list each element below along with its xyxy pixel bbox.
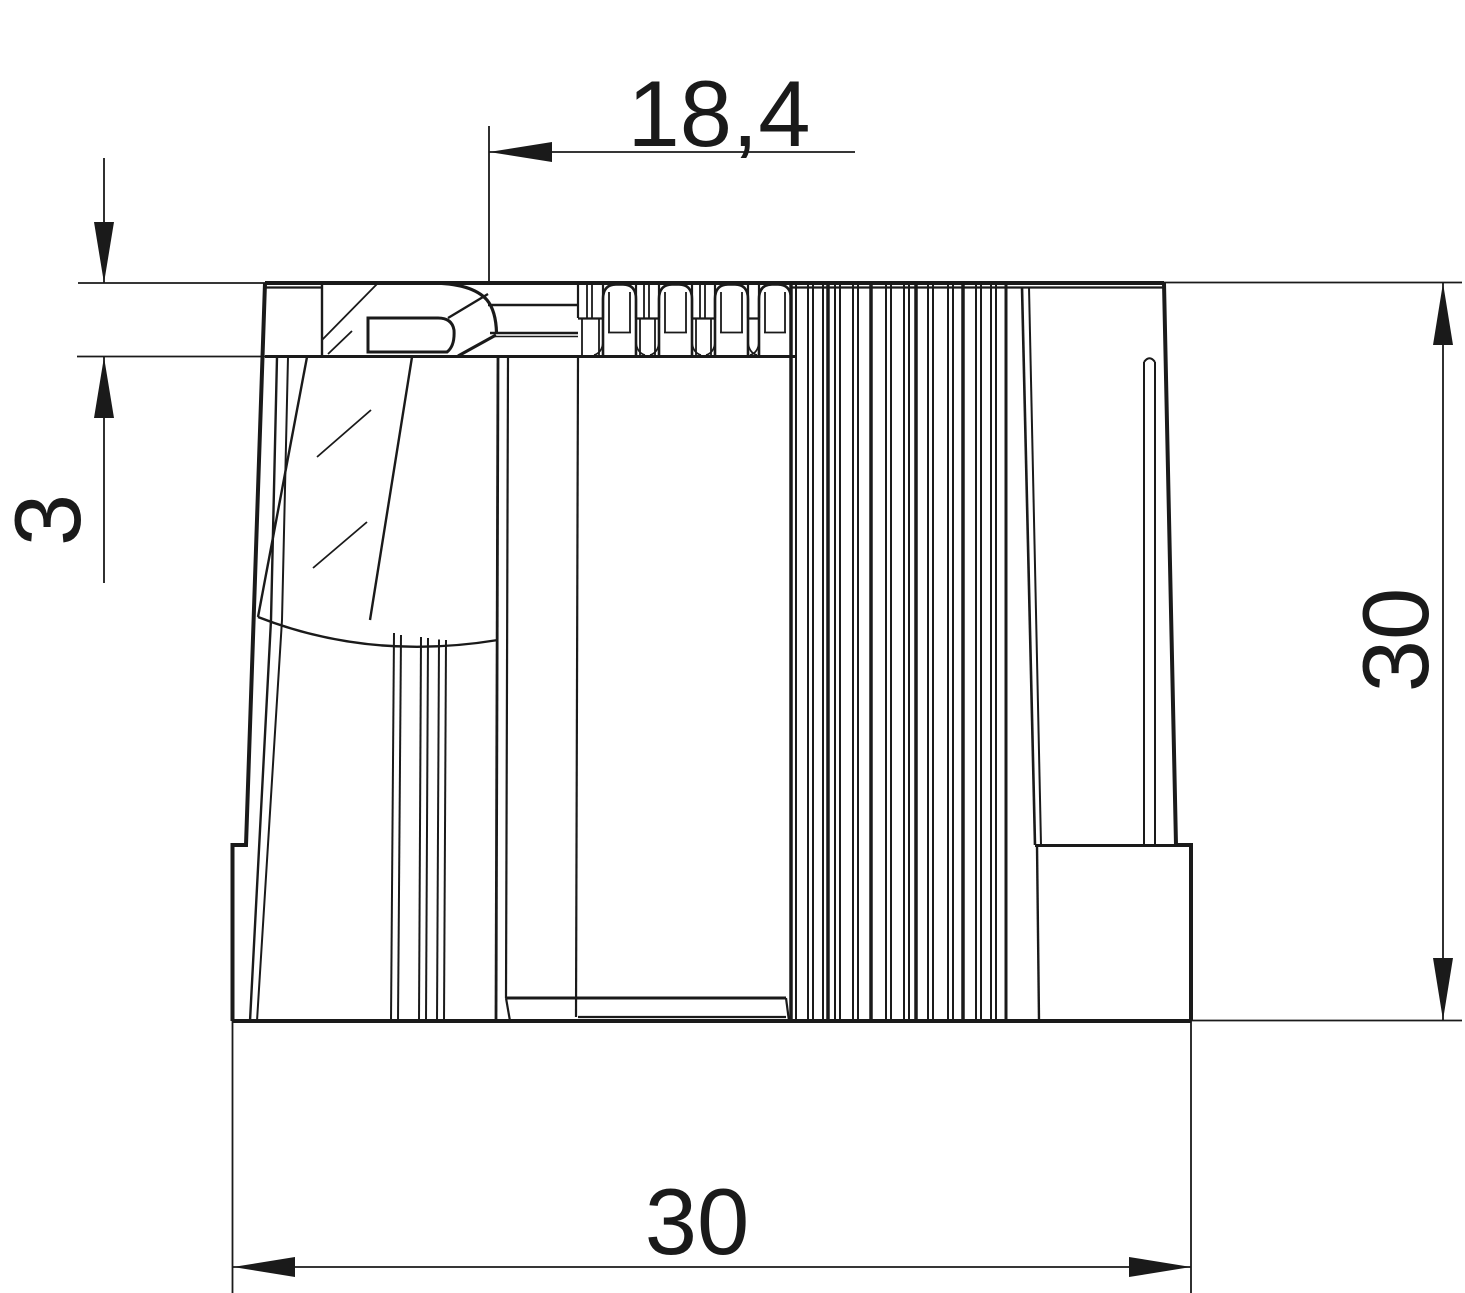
dim-right: 30: [1164, 283, 1462, 1021]
seal-pocket: [368, 318, 454, 352]
drawing-sheet: 18,4 3 30 30: [0, 0, 1465, 1293]
dim-left: 3: [0, 158, 265, 583]
crown-slots: [578, 283, 791, 356]
dim-top: 18,4: [489, 61, 855, 285]
dim-top-label: 18,4: [628, 61, 811, 166]
dim-bottom-arrow-left: [233, 1257, 295, 1277]
technical-drawing: 18,4 3 30 30: [0, 0, 1465, 1293]
dim-left-arrow-down: [94, 222, 114, 283]
left-skirt-lines: [250, 357, 446, 1021]
centre-window: [496, 356, 789, 1021]
sleeve-slot: [1144, 358, 1155, 845]
part-view: [233, 283, 1192, 1021]
rib-lines: [791, 283, 1006, 1021]
dim-bottom-arrow-right: [1129, 1257, 1191, 1277]
dimension-annotations: 18,4 3 30 30: [0, 61, 1462, 1293]
dim-left-arrow-up: [94, 357, 114, 418]
flange-section: [258, 283, 578, 647]
part-outline: [233, 283, 1192, 1021]
dim-bottom-label: 30: [645, 1169, 750, 1274]
dim-right-arrow-up: [1433, 283, 1453, 345]
dim-right-label: 30: [1343, 588, 1448, 693]
dim-top-arrow: [489, 142, 552, 162]
dim-left-label: 3: [0, 494, 100, 546]
dim-right-arrow-down: [1433, 958, 1453, 1020]
skirt-arc: [258, 617, 498, 647]
dim-bottom: 30: [233, 1021, 1192, 1293]
